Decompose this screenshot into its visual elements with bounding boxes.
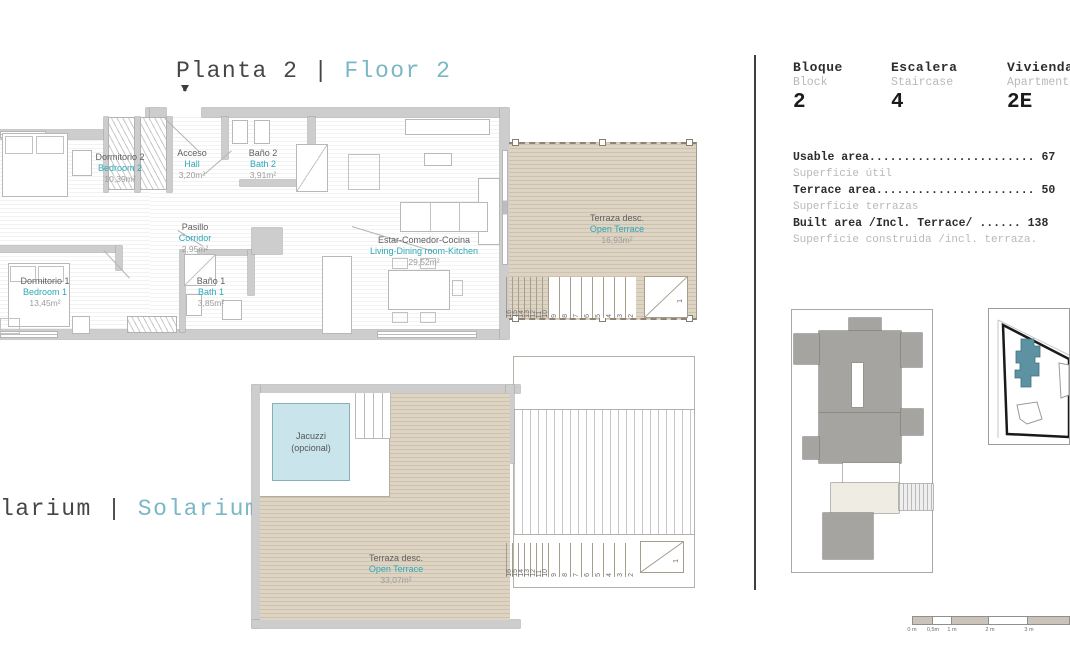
room-name-en: Hall — [177, 159, 207, 170]
room-area: 2,95m² — [179, 244, 212, 255]
room-label-living: Estar-Comedor-Cocina Living-Dining room-… — [370, 235, 478, 268]
area-sublabel: Superficie construida /incl. terraza. — [793, 234, 1037, 246]
room-name-en: Bath 2 — [249, 159, 278, 170]
staircase-floor2: 1615141312111098765432 — [506, 277, 636, 318]
room-label-terrace-floor2: Terraza desc. Open Terrace 16,93m² — [590, 213, 644, 246]
key-plan-block — [901, 409, 923, 435]
wall — [252, 228, 282, 254]
stair-step-number: 1 — [677, 299, 684, 303]
room-name-en: Living-Dining room-Kitchen — [370, 246, 478, 257]
toilet — [254, 120, 270, 144]
room-label-corridor: Pasillo Corridor 2,95m² — [179, 222, 212, 255]
jacuzzi-label: Jacuzzi (opcional) — [291, 430, 331, 454]
room-name-en: Open Terrace — [369, 564, 423, 575]
jacuzzi-label-line2: (opcional) — [291, 443, 331, 453]
stair-access — [355, 393, 391, 439]
stair-step: 5 — [592, 543, 603, 577]
info-label-en: Block — [793, 76, 843, 89]
kitchen-counter — [405, 119, 490, 135]
jacuzzi: Jacuzzi (opcional) — [272, 403, 350, 481]
stair-step: 6 — [581, 277, 592, 318]
room-area: 3,20m² — [177, 170, 207, 181]
area-leader-dots: ...... — [972, 217, 1027, 230]
info-apartment: Vivienda Apartment 2E — [1007, 60, 1070, 114]
terrace-post — [686, 139, 693, 146]
area-row-usable: Usable area........................ 67 — [793, 150, 1070, 166]
wall — [252, 385, 260, 628]
room-name-en: Bedroom 1 — [20, 287, 69, 298]
scale-segment — [951, 617, 989, 624]
stair-step: 8 — [559, 277, 570, 318]
chair — [452, 280, 463, 296]
shower — [296, 144, 328, 192]
room-name-es: Dormitorio 1 — [20, 276, 69, 287]
panel-divider — [754, 55, 756, 590]
scale-label: 1 m — [947, 627, 956, 633]
key-plan-block — [901, 333, 922, 367]
area-row-terrace-es: Superficie terrazas — [793, 199, 1070, 215]
wall — [252, 620, 520, 628]
scale-label: 2 m — [985, 627, 994, 633]
stair-diagonal-icon — [641, 542, 683, 572]
stair-step: 6 — [581, 543, 592, 577]
wall — [0, 246, 120, 252]
key-plan-stairwell — [843, 463, 899, 483]
room-label-bedroom2: Dormitorio 2 Bedroom 2 10,39m² — [95, 152, 144, 185]
chair — [420, 312, 436, 323]
info-value: 2 — [793, 91, 843, 114]
site-building — [1017, 402, 1042, 424]
dining-table — [388, 270, 450, 310]
wall — [248, 250, 254, 295]
scale-bar — [912, 616, 1070, 625]
area-row-usable-es: Superficie útil — [793, 166, 1070, 182]
scale-segment — [988, 617, 1027, 624]
nightstand — [72, 150, 92, 176]
info-label-en: Apartment — [1007, 76, 1070, 89]
key-plan-stair-core — [852, 363, 863, 407]
kitchen-island — [322, 256, 352, 334]
page-title: Planta 2 | Floor 2 — [176, 58, 451, 84]
stair-landing: 1 — [644, 276, 688, 318]
side-table — [424, 153, 452, 166]
jacuzzi-label-line1: Jacuzzi — [296, 431, 326, 441]
stair-step: 7 — [570, 277, 581, 318]
info-staircase: Escalera Staircase 4 — [891, 60, 957, 114]
info-label-es: Escalera — [891, 60, 957, 75]
room-label-bath2: Baño 2 Bath 2 3,91m² — [249, 148, 278, 181]
solarium-title-es: larium — [0, 496, 92, 522]
info-label-es: Bloque — [793, 60, 843, 75]
key-plan-current-apartment — [831, 483, 899, 513]
info-label-es: Vivienda — [1007, 60, 1070, 75]
room-name-es: Acceso — [177, 148, 207, 159]
solarium-title-separator: | — [107, 496, 122, 522]
bench — [0, 318, 20, 334]
areas-table: Usable area........................ 67 S… — [793, 150, 1070, 248]
room-name-es: Terraza desc. — [590, 213, 644, 224]
armchair — [348, 154, 380, 190]
room-name-en: Bedroom 2 — [95, 163, 144, 174]
room-name-es: Estar-Comedor-Cocina — [370, 235, 478, 246]
stair-landing: 1 — [640, 541, 684, 573]
key-plan-block — [823, 513, 873, 559]
key-plan-block — [794, 334, 819, 364]
nightstand — [72, 316, 90, 334]
room-name-en: Corridor — [179, 233, 212, 244]
stair-step: 3 — [614, 543, 625, 577]
stair-step: 4 — [603, 543, 614, 577]
chair — [392, 312, 408, 323]
site-building — [1059, 363, 1069, 398]
area-label: Terrace area — [793, 184, 876, 197]
room-area: 16,93m² — [590, 235, 644, 246]
area-value: 67 — [1041, 151, 1055, 164]
room-name-es: Pasillo — [179, 222, 212, 233]
room-area: 13,45m² — [20, 298, 69, 309]
area-value: 50 — [1041, 184, 1055, 197]
scale-label: 0 m — [907, 627, 916, 633]
area-label: Built area /Incl. Terrace/ — [793, 217, 972, 230]
scale-label: 0,5m — [927, 627, 939, 633]
solarium-title: larium | Solarium — [0, 496, 260, 522]
area-leader-dots: ........................ — [869, 151, 1042, 164]
site-plan-map — [989, 309, 1069, 444]
floorplan-sheet: Planta 2 | Floor 2 E — [0, 0, 1070, 650]
room-area: 3,91m² — [249, 170, 278, 181]
sofa-seat-divider — [459, 203, 460, 231]
area-value: 138 — [1028, 217, 1049, 230]
room-label-hall: Acceso Hall 3,20m² — [177, 148, 207, 181]
wall — [150, 108, 166, 117]
wall — [202, 108, 505, 117]
area-row-built: Built area /Incl. Terrace/ ...... 138 — [793, 216, 1070, 232]
page-title-en: Floor 2 — [344, 58, 451, 84]
terrace-sliding-door — [502, 150, 508, 265]
area-row-built-es: Superficie construida /incl. terraza. — [793, 232, 1070, 248]
key-plan-block — [803, 437, 819, 459]
pillow — [5, 136, 33, 154]
area-leader-dots: ....................... — [876, 184, 1042, 197]
stair-step: 5 — [592, 277, 603, 318]
entrance-marker: E — [179, 85, 191, 110]
room-name-en: Bath 1 — [197, 287, 226, 298]
wall — [252, 385, 520, 393]
entrance-arrow-icon — [181, 85, 189, 109]
stair-step-number: 1 — [673, 559, 680, 563]
room-name-es: Baño 2 — [249, 148, 278, 159]
stair-step: 2 — [625, 277, 636, 318]
scale-segment — [913, 617, 932, 624]
window — [377, 331, 477, 338]
solarium-title-en: Solarium — [138, 496, 260, 522]
wall — [167, 117, 172, 192]
site-plan — [988, 308, 1070, 445]
scale-label: 3 m — [1024, 627, 1033, 633]
sink — [232, 120, 248, 144]
stair-step: 9 — [548, 543, 559, 577]
room-area: 33,07m² — [369, 575, 423, 586]
page-title-es: Planta 2 — [176, 58, 298, 84]
stair-step: 9 — [548, 277, 559, 318]
info-label-en: Staircase — [891, 76, 957, 89]
pillow — [36, 136, 64, 154]
room-name-es: Terraza desc. — [369, 553, 423, 564]
area-sublabel: Superficie terrazas — [793, 201, 918, 213]
stair-step: 3 — [614, 277, 625, 318]
info-value: 2E — [1007, 91, 1070, 114]
room-area: 10,39m² — [95, 174, 144, 185]
site-building-highlighted — [1015, 339, 1040, 387]
room-name-en: Open Terrace — [590, 224, 644, 235]
key-plan-block — [819, 413, 901, 463]
room-label-bedroom1: Dormitorio 1 Bedroom 1 13,45m² — [20, 276, 69, 309]
stair-step: 8 — [559, 543, 570, 577]
room-name-es: Baño 1 — [197, 276, 226, 287]
stair-step: 7 — [570, 543, 581, 577]
area-sublabel: Superficie útil — [793, 168, 892, 180]
terrace-post — [512, 139, 519, 146]
area-label: Usable area — [793, 151, 869, 164]
key-plan-terrace — [899, 484, 933, 510]
room-label-bath1: Baño 1 Bath 1 3,85m² — [197, 276, 226, 309]
area-row-terrace: Terrace area....................... 50 — [793, 183, 1070, 199]
pergola-slats — [514, 409, 694, 535]
key-plan — [791, 309, 933, 573]
sofa — [400, 202, 488, 232]
stair-diagonal-icon — [645, 277, 687, 317]
page-title-separator: | — [314, 58, 329, 84]
room-area: 29,52m² — [370, 257, 478, 268]
room-name-es: Dormitorio 2 — [95, 152, 144, 163]
stair-step: 2 — [625, 543, 636, 577]
scale-segment — [932, 617, 951, 624]
info-value: 4 — [891, 91, 957, 114]
room-area: 3,85m² — [197, 298, 226, 309]
staircase-solarium: 1615141312111098765432 — [506, 543, 636, 577]
scale-segment — [1027, 617, 1069, 624]
sofa-seat-divider — [430, 203, 431, 231]
info-block: Bloque Block 2 — [793, 60, 843, 114]
wardrobe — [127, 316, 177, 333]
stair-step: 4 — [603, 277, 614, 318]
terrace-post — [599, 139, 606, 146]
room-label-terrace-solarium: Terraza desc. Open Terrace 33,07m² — [369, 553, 423, 586]
